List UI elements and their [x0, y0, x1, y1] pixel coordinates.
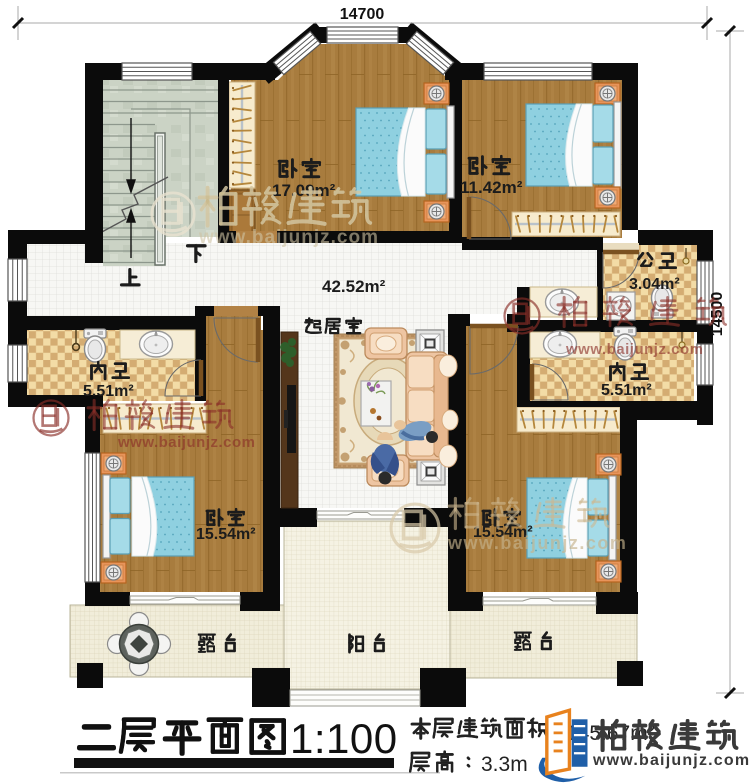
svg-text:www.baijunjz.com: www.baijunjz.com — [117, 434, 255, 451]
svg-text:1:100: 1:100 — [290, 715, 398, 762]
svg-text:3.04m²: 3.04m² — [629, 276, 680, 293]
svg-text:11.42m²: 11.42m² — [460, 178, 523, 197]
svg-text:42.52m²: 42.52m² — [322, 277, 386, 296]
svg-text:15.54m²: 15.54m² — [196, 526, 256, 543]
svg-text:www.baijunjz.com: www.baijunjz.com — [198, 227, 379, 248]
svg-text:14700: 14700 — [340, 6, 385, 23]
svg-text:5.51m²: 5.51m² — [83, 383, 134, 400]
svg-text:www.baijunjz.com: www.baijunjz.com — [565, 341, 703, 358]
svg-text:5.51m²: 5.51m² — [601, 382, 652, 399]
svg-text:www.baijunjz.com: www.baijunjz.com — [447, 533, 627, 553]
svg-text:www.baijunjz.com: www.baijunjz.com — [592, 752, 750, 769]
svg-text:3.3m: 3.3m — [481, 753, 528, 776]
